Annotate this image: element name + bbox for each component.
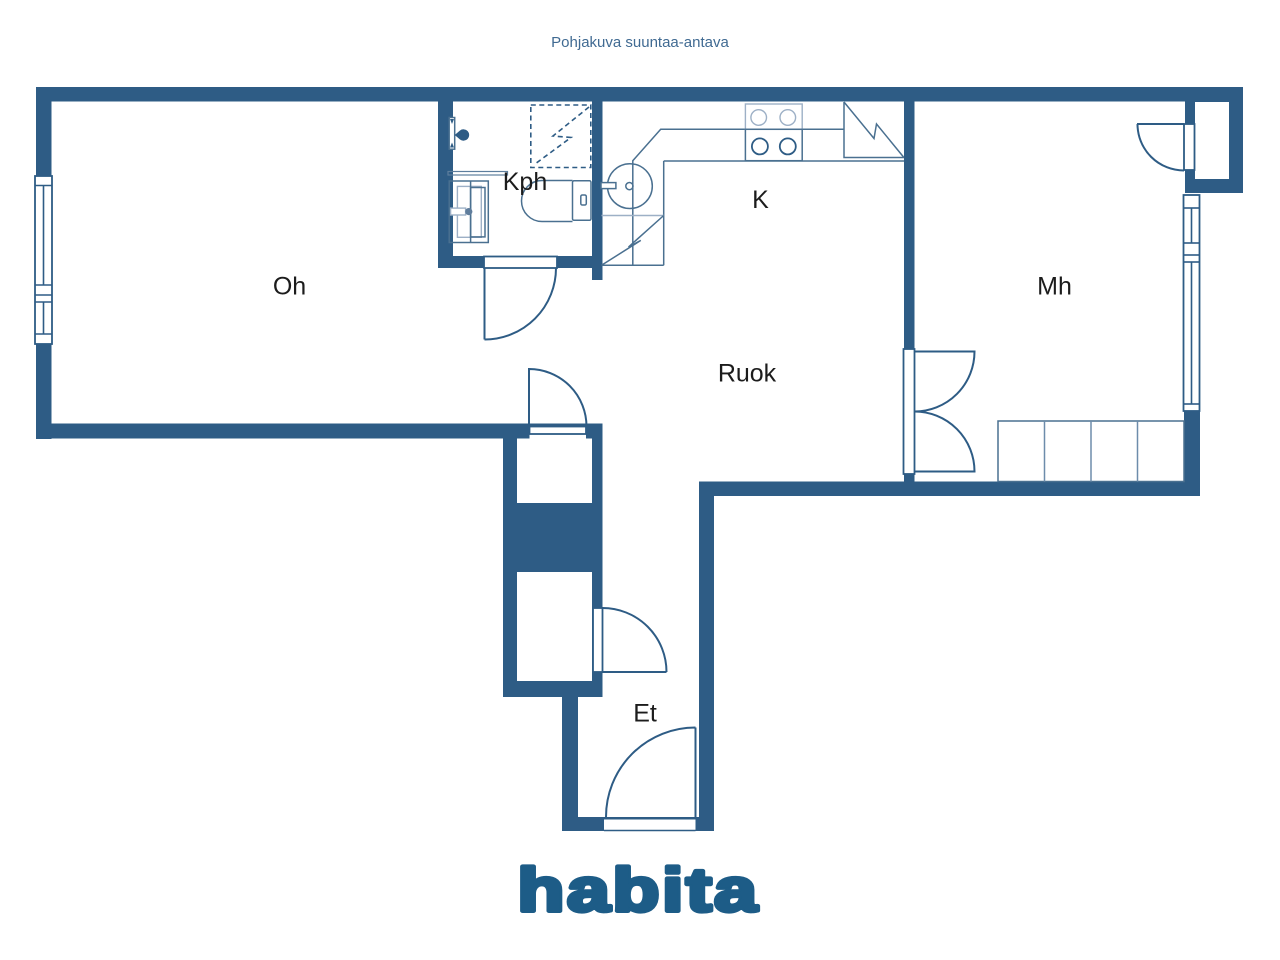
svg-text:Ruok: Ruok	[718, 360, 777, 388]
svg-text:Mh: Mh	[1037, 273, 1072, 301]
svg-text:K: K	[752, 186, 769, 214]
svg-text:Pohjakuva suuntaa-antava: Pohjakuva suuntaa-antava	[551, 34, 729, 51]
svg-text:habita: habita	[517, 856, 759, 924]
svg-text:Oh: Oh	[273, 273, 306, 301]
svg-text:Et: Et	[633, 700, 657, 728]
svg-text:Kph: Kph	[503, 168, 547, 196]
